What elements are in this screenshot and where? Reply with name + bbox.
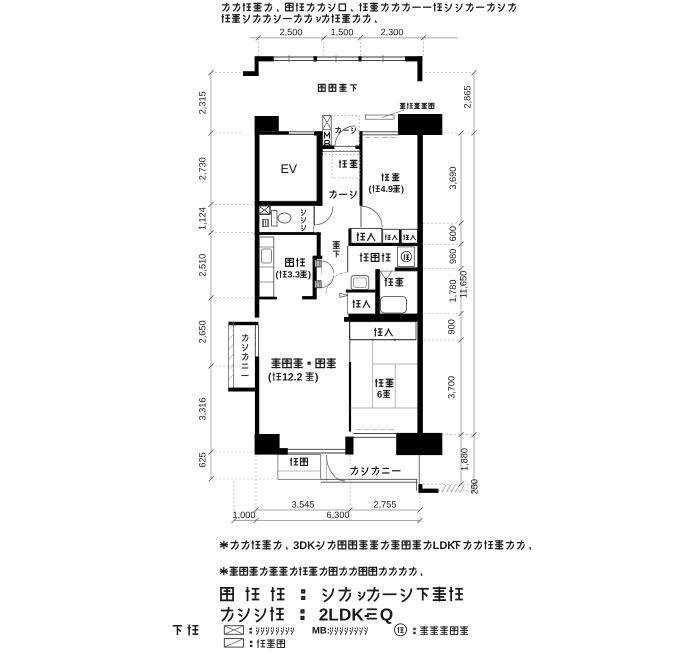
svg-text:250: 250	[470, 479, 480, 494]
svg-text:): )	[315, 372, 319, 384]
svg-text:): )	[308, 270, 311, 280]
svg-text:2,650: 2,650	[198, 320, 208, 343]
svg-text:1,500: 1,500	[330, 27, 353, 37]
svg-text:2,300: 2,300	[380, 27, 403, 37]
svg-text:3,700: 3,700	[447, 376, 457, 399]
svg-text:(: (	[268, 372, 272, 384]
svg-text:1,880: 1,880	[460, 448, 470, 471]
svg-text:2,510: 2,510	[198, 254, 208, 277]
svg-text:6,300: 6,300	[326, 510, 349, 520]
svg-text:12.2: 12.2	[282, 372, 303, 384]
svg-text:3,690: 3,690	[448, 167, 458, 190]
svg-text:1,124: 1,124	[198, 207, 208, 230]
svg-text:2,315: 2,315	[198, 91, 208, 114]
svg-text:1,780: 1,780	[448, 280, 458, 303]
svg-text:MB:: MB:	[312, 626, 330, 637]
svg-text:(: (	[368, 184, 371, 194]
svg-text:2,500: 2,500	[279, 27, 302, 37]
svg-text:2,865: 2,865	[463, 86, 473, 109]
svg-text:2,755: 2,755	[373, 499, 396, 509]
svg-text:900: 900	[447, 319, 457, 334]
svg-text:EV: EV	[280, 162, 297, 176]
svg-text:6: 6	[377, 390, 382, 401]
svg-text:3,316: 3,316	[198, 398, 208, 421]
svg-text:1,000: 1,000	[232, 510, 255, 520]
svg-text:(: (	[275, 270, 278, 280]
svg-text:2,730: 2,730	[198, 157, 208, 180]
svg-text:4.9: 4.9	[380, 184, 393, 194]
svg-text:3,545: 3,545	[291, 499, 314, 509]
svg-text:11,650: 11,650	[459, 271, 469, 298]
svg-text:600: 600	[448, 226, 458, 241]
svg-text:625: 625	[198, 452, 208, 467]
svg-text:LDK: LDK	[433, 540, 456, 552]
svg-text:): )	[401, 184, 404, 194]
svg-text:2LDK-: 2LDK-	[319, 605, 370, 625]
svg-text:3.3: 3.3	[287, 270, 300, 280]
svg-text:3DK-: 3DK-	[293, 540, 319, 552]
svg-text:980: 980	[448, 249, 458, 264]
svg-text:Q: Q	[380, 605, 393, 625]
